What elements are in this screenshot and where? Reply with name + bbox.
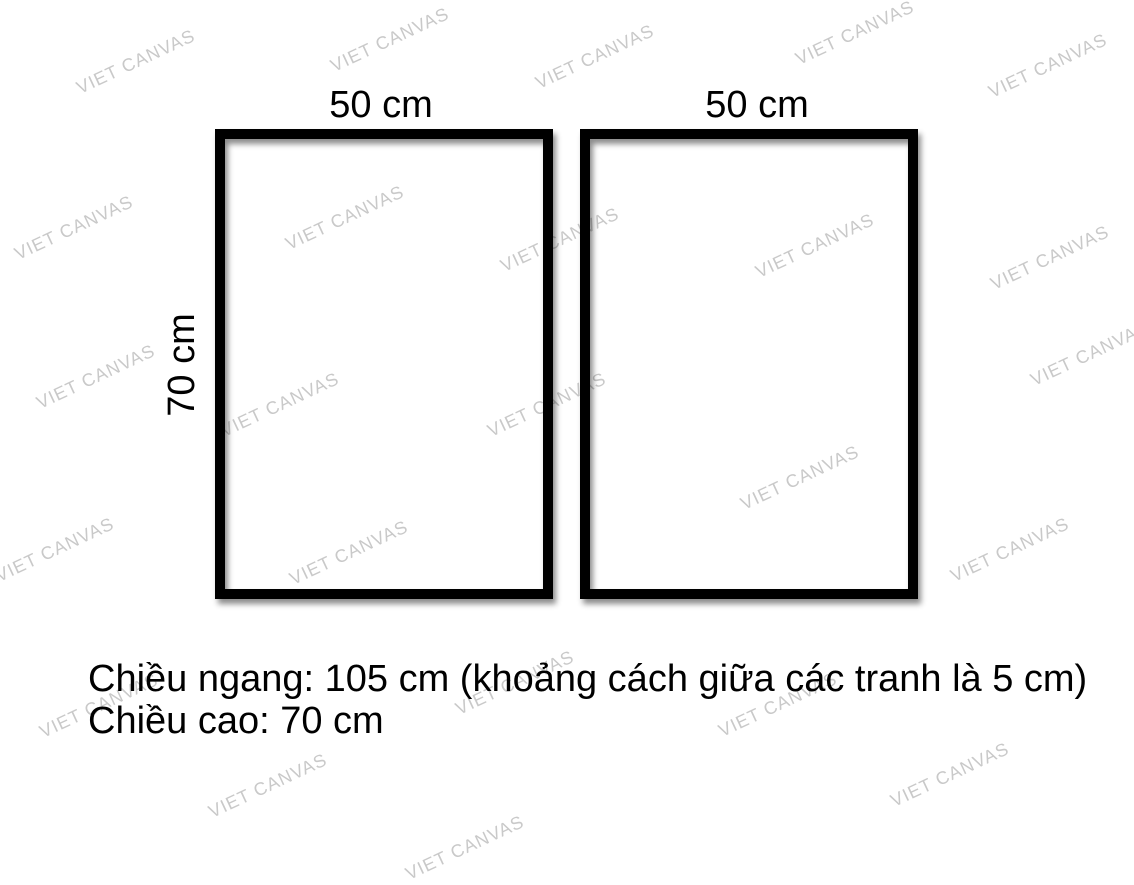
caption: Chiều ngang: 105 cm (khoảng cách giữa cá… [88,658,1087,742]
watermark-text: VIET CANVAS [987,221,1112,294]
watermark-text: VIET CANVAS [887,738,1012,811]
watermark-text: VIET CANVAS [73,25,198,98]
caption-line-vertical: Chiều cao: 70 cm [88,700,1087,742]
height-label: 70 cm [161,313,203,416]
width-label-left-frame: 50 cm [329,84,432,126]
watermark-text: VIET CANVAS [205,749,330,822]
watermark-text: VIET CANVAS [0,513,118,586]
watermark-text: VIET CANVAS [532,20,657,93]
watermark-text: VIET CANVAS [985,29,1110,102]
watermark-text: VIET CANVAS [792,0,917,70]
watermark-text: VIET CANVAS [402,811,527,884]
watermark-text: VIET CANVAS [1027,317,1134,390]
watermark-text: VIET CANVAS [327,3,452,76]
caption-line-horizontal: Chiều ngang: 105 cm (khoảng cách giữa cá… [88,658,1087,700]
watermark-text: VIET CANVAS [11,191,136,264]
watermark-text: VIET CANVAS [947,513,1072,586]
canvas-frame-left [215,129,553,599]
canvas-frame-right [580,129,918,599]
watermark-text: VIET CANVAS [33,340,158,413]
width-label-right-frame: 50 cm [705,84,808,126]
